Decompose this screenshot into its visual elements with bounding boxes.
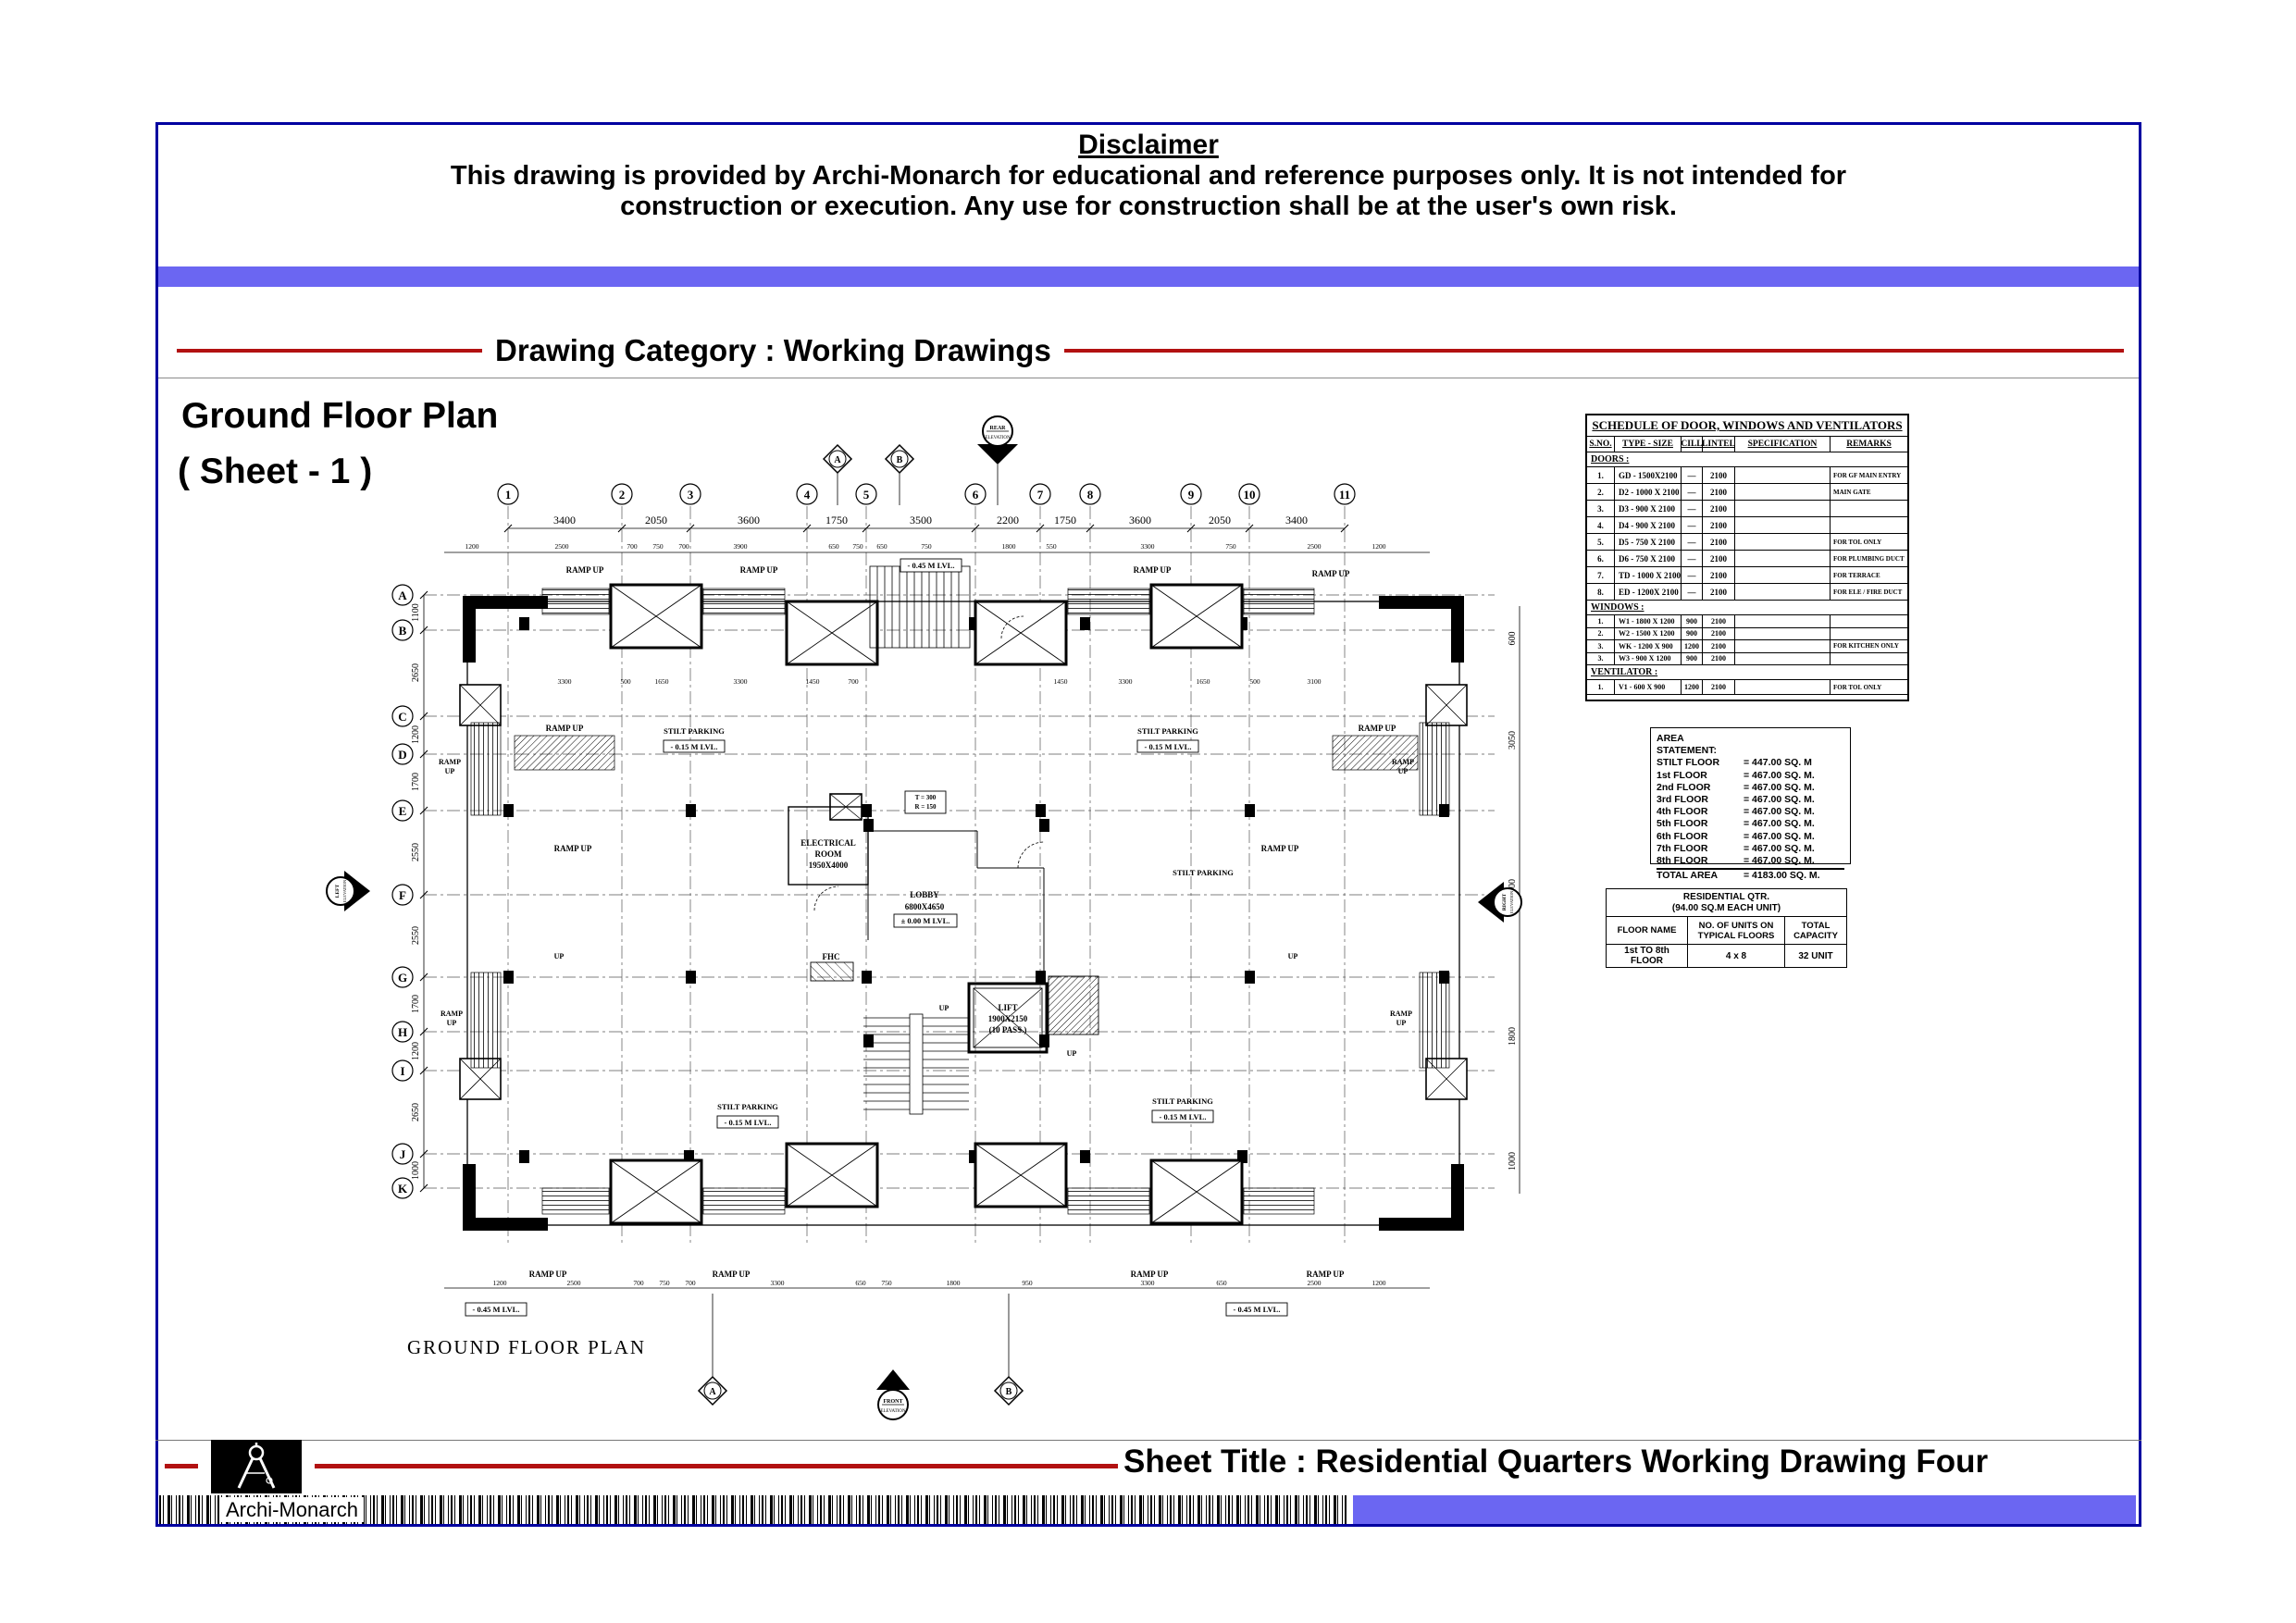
svg-text:ELECTRICAL: ELECTRICAL bbox=[800, 838, 856, 848]
residential-table: RESIDENTIAL QTR.(94.00 SQ.M EACH UNIT) F… bbox=[1606, 888, 1847, 968]
svg-text:2650: 2650 bbox=[411, 663, 421, 682]
svg-text:B: B bbox=[1006, 1387, 1012, 1397]
svg-text:A: A bbox=[398, 588, 407, 602]
svg-text:1800: 1800 bbox=[1508, 1027, 1518, 1046]
svg-text:2550: 2550 bbox=[411, 843, 421, 861]
svg-text:B: B bbox=[897, 455, 903, 465]
svg-text:2: 2 bbox=[619, 488, 626, 502]
svg-text:2500: 2500 bbox=[555, 542, 569, 551]
grid-bubbles-left: AB CD EF GH IJ K bbox=[392, 585, 413, 1198]
svg-text:650: 650 bbox=[876, 542, 887, 551]
svg-text:2200: 2200 bbox=[997, 514, 1019, 527]
svg-text:750: 750 bbox=[852, 542, 863, 551]
svg-text:3300: 3300 bbox=[771, 1279, 785, 1287]
disclaimer-block: Disclaimer This drawing is provided by A… bbox=[158, 130, 2139, 222]
svg-text:C: C bbox=[398, 710, 406, 724]
svg-text:LOBBY: LOBBY bbox=[910, 890, 939, 899]
svg-text:3400: 3400 bbox=[1285, 514, 1308, 527]
svg-text:9: 9 bbox=[1188, 488, 1195, 502]
svg-text:R = 150: R = 150 bbox=[914, 803, 937, 811]
table-row: 4.D4 - 900 X 2100—2100 bbox=[1587, 517, 1907, 534]
table-row: 2.D2 - 1000 X 2100—2100MAIN GATE bbox=[1587, 484, 1907, 501]
svg-text:RAMP UP: RAMP UP bbox=[1131, 1270, 1169, 1279]
svg-text:2650: 2650 bbox=[411, 1103, 421, 1121]
svg-text:550: 550 bbox=[1046, 542, 1057, 551]
svg-text:1000: 1000 bbox=[411, 1161, 421, 1180]
disclaimer-line2: construction or execution. Any use for c… bbox=[158, 192, 2139, 222]
svg-text:RAMP UP: RAMP UP bbox=[554, 844, 592, 853]
svg-text:UP: UP bbox=[445, 767, 455, 775]
svg-text:RAMP UP: RAMP UP bbox=[740, 565, 778, 575]
svg-text:3300: 3300 bbox=[1141, 1279, 1155, 1287]
svg-text:3: 3 bbox=[688, 488, 694, 502]
svg-text:2500: 2500 bbox=[567, 1279, 581, 1287]
svg-text:1900X2150: 1900X2150 bbox=[988, 1014, 1028, 1023]
svg-text:750: 750 bbox=[881, 1279, 892, 1287]
svg-text:ELEVATION: ELEVATION bbox=[880, 1409, 906, 1414]
corner-walls bbox=[463, 596, 1464, 1231]
svg-text:1700: 1700 bbox=[411, 995, 421, 1013]
svg-text:UP: UP bbox=[1067, 1049, 1077, 1058]
category-row: Drawing Category : Working Drawings bbox=[158, 329, 2139, 372]
svg-text:RAMP UP: RAMP UP bbox=[529, 1270, 567, 1279]
svg-text:3600: 3600 bbox=[738, 514, 760, 527]
table-row: 6.D6 - 750 X 2100—2100FOR PLUMBING DUCT bbox=[1587, 551, 1907, 567]
svg-text:FHC: FHC bbox=[823, 952, 840, 961]
svg-text:UP: UP bbox=[1288, 952, 1298, 960]
svg-text:LIFT: LIFT bbox=[998, 1003, 1017, 1012]
schedule-section-ventilator: VENTILATOR : bbox=[1587, 665, 1907, 680]
svg-text:10: 10 bbox=[1244, 488, 1256, 502]
table-row: 7.TD - 1000 X 2100—2100FOR TERRACE bbox=[1587, 567, 1907, 584]
svg-text:3500: 3500 bbox=[910, 514, 932, 527]
svg-text:1200: 1200 bbox=[465, 542, 479, 551]
svg-text:1750: 1750 bbox=[1054, 514, 1076, 527]
svg-text:ELEVATION: ELEVATION bbox=[985, 436, 1011, 440]
residential-title: RESIDENTIAL QTR.(94.00 SQ.M EACH UNIT) bbox=[1607, 889, 1846, 917]
area-title: AREA STATEMENT: bbox=[1657, 733, 1844, 757]
svg-text:1950X4000: 1950X4000 bbox=[809, 861, 849, 870]
svg-text:700: 700 bbox=[678, 542, 689, 551]
svg-text:1200: 1200 bbox=[1372, 1279, 1386, 1287]
svg-text:1200: 1200 bbox=[493, 1279, 507, 1287]
svg-text:UP: UP bbox=[1398, 767, 1409, 775]
svg-text:750: 750 bbox=[1225, 542, 1236, 551]
disclaimer-title: Disclaimer bbox=[158, 130, 2139, 161]
svg-text:1650: 1650 bbox=[1197, 677, 1210, 686]
list-item: STILT FLOOR= 447.00 SQ. M bbox=[1657, 757, 1844, 769]
list-item: 4th FLOOR= 467.00 SQ. M. bbox=[1657, 806, 1844, 818]
svg-text:3050: 3050 bbox=[1508, 731, 1518, 750]
category-label: Drawing Category : Working Drawings bbox=[482, 333, 1064, 368]
table-row: 1.W1 - 1800 X 12009002100 bbox=[1587, 615, 1907, 628]
svg-text:- 0.15 M LVL.: - 0.15 M LVL. bbox=[725, 1118, 772, 1127]
svg-text:I: I bbox=[400, 1064, 404, 1078]
svg-text:RAMP UP: RAMP UP bbox=[713, 1270, 751, 1279]
svg-text:F: F bbox=[399, 888, 406, 902]
area-total: TOTAL AREA= 4183.00 SQ. M. bbox=[1657, 868, 1844, 882]
svg-text:RAMP UP: RAMP UP bbox=[1307, 1270, 1345, 1279]
footer-redline-dash bbox=[165, 1464, 198, 1468]
svg-text:H: H bbox=[398, 1025, 407, 1039]
svg-text:2500: 2500 bbox=[1308, 1279, 1322, 1287]
svg-text:- 0.15 M LVL.: - 0.15 M LVL. bbox=[1160, 1112, 1207, 1121]
svg-text:700: 700 bbox=[627, 542, 638, 551]
svg-text:3300: 3300 bbox=[734, 677, 748, 686]
svg-text:FRONT: FRONT bbox=[884, 1399, 903, 1405]
category-redline-left bbox=[177, 349, 482, 353]
category-redline-right bbox=[1064, 349, 2124, 353]
svg-text:700: 700 bbox=[848, 677, 859, 686]
svg-text:UP: UP bbox=[1396, 1019, 1407, 1027]
svg-text:- 0.15 M LVL.: - 0.15 M LVL. bbox=[1145, 742, 1192, 751]
svg-text:650: 650 bbox=[1216, 1279, 1227, 1287]
floor-plan-drawing: 12 34 56 78 910 11 AB CD EF GH IJ K 3400… bbox=[305, 398, 1601, 1453]
plan-caption: GROUND FLOOR PLAN bbox=[407, 1336, 646, 1358]
bottom-accent-bar bbox=[1353, 1495, 2136, 1524]
svg-text:2550: 2550 bbox=[411, 926, 421, 945]
svg-text:1800: 1800 bbox=[1002, 542, 1016, 551]
ramp-bands bbox=[471, 588, 1449, 1214]
svg-text:ELEVATION: ELEVATION bbox=[342, 879, 347, 902]
svg-text:750: 750 bbox=[652, 542, 664, 551]
svg-text:3900: 3900 bbox=[734, 542, 748, 551]
svg-text:UP: UP bbox=[554, 952, 565, 960]
brand-name: Archi-Monarch bbox=[220, 1497, 364, 1522]
svg-text:750: 750 bbox=[921, 542, 932, 551]
table-row: 5.D5 - 750 X 2100—2100FOR TOI. ONLY bbox=[1587, 534, 1907, 551]
svg-text:STILT PARKING: STILT PARKING bbox=[717, 1102, 778, 1111]
svg-text:3300: 3300 bbox=[1119, 677, 1133, 686]
svg-text:1700: 1700 bbox=[411, 773, 421, 791]
columns bbox=[503, 617, 1449, 1163]
svg-text:RAMP: RAMP bbox=[1390, 1010, 1412, 1018]
table-row: 3.WK - 1200 X 90012002100FOR KITCHEN ONL… bbox=[1587, 640, 1907, 653]
residential-header-row: FLOOR NAME NO. OF UNITS ON TYPICAL FLOOR… bbox=[1607, 917, 1846, 945]
svg-text:RAMP UP: RAMP UP bbox=[1134, 565, 1172, 575]
svg-text:1200: 1200 bbox=[1372, 542, 1386, 551]
svg-text:T = 300: T = 300 bbox=[915, 794, 937, 801]
list-item: 5th FLOOR= 467.00 SQ. M. bbox=[1657, 818, 1844, 830]
svg-text:RAMP UP: RAMP UP bbox=[1312, 569, 1350, 578]
svg-text:RIGHT: RIGHT bbox=[1502, 894, 1508, 911]
svg-text:STILT PARKING: STILT PARKING bbox=[664, 726, 725, 736]
table-row: 1st TO 8th FLOOR 4 x 8 32 UNIT bbox=[1607, 945, 1846, 967]
svg-text:650: 650 bbox=[855, 1279, 866, 1287]
svg-text:J: J bbox=[400, 1147, 406, 1161]
svg-text:REAR: REAR bbox=[989, 426, 1006, 431]
svg-text:1650: 1650 bbox=[655, 677, 669, 686]
svg-text:2050: 2050 bbox=[1209, 514, 1231, 527]
svg-text:± 0.00 M LVL.: ± 0.00 M LVL. bbox=[901, 916, 950, 925]
svg-text:UP: UP bbox=[939, 1004, 949, 1012]
list-item: 3rd FLOOR= 467.00 SQ. M. bbox=[1657, 794, 1844, 806]
svg-text:3100: 3100 bbox=[1308, 677, 1322, 686]
svg-text:1200: 1200 bbox=[411, 1042, 421, 1060]
footer-redline bbox=[315, 1464, 1118, 1468]
svg-text:- 0.45 M LVL.: - 0.45 M LVL. bbox=[1234, 1305, 1281, 1314]
svg-text:700: 700 bbox=[685, 1279, 696, 1287]
svg-text:7: 7 bbox=[1037, 488, 1044, 502]
bottom-dimensions: 12002500 700750 7003300 650750 1800950 3… bbox=[493, 1279, 1386, 1287]
svg-text:STILT PARKING: STILT PARKING bbox=[1137, 726, 1198, 736]
building-perimeter bbox=[467, 601, 1459, 1225]
schedule-title: SCHEDULE OF DOOR, WINDOWS AND VENTILATOR… bbox=[1587, 415, 1907, 437]
brand-logo bbox=[211, 1440, 302, 1493]
svg-text:3400: 3400 bbox=[553, 514, 576, 527]
svg-text:RAMP UP: RAMP UP bbox=[1359, 724, 1396, 733]
svg-text:1800: 1800 bbox=[947, 1279, 961, 1287]
disclaimer-line1: This drawing is provided by Archi-Monarc… bbox=[158, 161, 2139, 192]
svg-text:3300: 3300 bbox=[1141, 542, 1155, 551]
svg-text:1000: 1000 bbox=[1508, 1152, 1518, 1171]
list-item: 7th FLOOR= 467.00 SQ. M. bbox=[1657, 843, 1844, 855]
svg-text:500: 500 bbox=[1249, 677, 1260, 686]
svg-text:8: 8 bbox=[1087, 488, 1094, 502]
svg-text:3300: 3300 bbox=[558, 677, 572, 686]
svg-text:RAMP: RAMP bbox=[1392, 758, 1414, 766]
svg-text:1200: 1200 bbox=[411, 725, 421, 744]
svg-text:A: A bbox=[709, 1387, 716, 1397]
svg-text:2500: 2500 bbox=[1308, 542, 1322, 551]
schedule-section-doors: DOORS : bbox=[1587, 452, 1907, 467]
table-row: 1.V1 - 600 X 90012002100FOR TOI. ONLY bbox=[1587, 680, 1907, 695]
left-elevation-marker: LEFT ELEVATION bbox=[327, 871, 370, 911]
svg-text:6: 6 bbox=[973, 488, 979, 502]
svg-text:- 0.45 M LVL.: - 0.45 M LVL. bbox=[908, 561, 955, 570]
svg-text:650: 650 bbox=[828, 542, 839, 551]
svg-text:LEFT: LEFT bbox=[335, 884, 341, 898]
svg-text:ELEVATION: ELEVATION bbox=[1509, 890, 1514, 913]
schedule-section-windows: WINDOWS : bbox=[1587, 601, 1907, 615]
svg-text:- 0.45 M LVL.: - 0.45 M LVL. bbox=[473, 1305, 520, 1314]
svg-text:2050: 2050 bbox=[645, 514, 667, 527]
svg-text:ROOM: ROOM bbox=[815, 849, 843, 859]
svg-text:- 0.15 M LVL.: - 0.15 M LVL. bbox=[671, 742, 718, 751]
svg-text:STILT PARKING: STILT PARKING bbox=[1173, 868, 1234, 877]
svg-text:G: G bbox=[398, 971, 407, 985]
svg-text:D: D bbox=[398, 748, 406, 762]
svg-text:11: 11 bbox=[1339, 488, 1350, 502]
svg-text:1100: 1100 bbox=[411, 603, 421, 622]
svg-text:700: 700 bbox=[633, 1279, 644, 1287]
svg-text:6800X4650: 6800X4650 bbox=[905, 902, 945, 911]
svg-text:750: 750 bbox=[659, 1279, 670, 1287]
compass-icon bbox=[211, 1440, 302, 1493]
svg-text:UP: UP bbox=[447, 1019, 457, 1027]
schedule-table: SCHEDULE OF DOOR, WINDOWS AND VENTILATOR… bbox=[1585, 414, 1909, 701]
svg-text:(10 PASS.): (10 PASS.) bbox=[989, 1025, 1027, 1035]
svg-text:3600: 3600 bbox=[1129, 514, 1151, 527]
table-row: 1.GD - 1500X2100—2100FOR GF MAIN ENTRY bbox=[1587, 467, 1907, 484]
svg-text:K: K bbox=[398, 1182, 408, 1196]
svg-text:1450: 1450 bbox=[806, 677, 820, 686]
svg-text:1: 1 bbox=[505, 488, 512, 502]
list-item: 1st FLOOR= 467.00 SQ. M. bbox=[1657, 770, 1844, 782]
category-divider bbox=[158, 378, 2139, 378]
list-item: 6th FLOOR= 467.00 SQ. M. bbox=[1657, 831, 1844, 843]
footer-divider bbox=[155, 1440, 2141, 1441]
svg-text:600: 600 bbox=[1508, 632, 1518, 646]
table-row: 3.D3 - 900 X 2100—2100 bbox=[1587, 501, 1907, 517]
svg-text:1750: 1750 bbox=[825, 514, 848, 527]
table-row: 2.W2 - 1500 X 12009002100 bbox=[1587, 628, 1907, 641]
schedule-header-row: S.NO. TYPE - SIZE CILL LINTEL SPECIFICAT… bbox=[1587, 437, 1907, 452]
svg-text:A: A bbox=[834, 455, 841, 465]
inner-dimensions: 3300500 16503300 1450700 14503300 165050… bbox=[558, 677, 1322, 686]
svg-text:4: 4 bbox=[804, 488, 811, 502]
svg-text:B: B bbox=[399, 624, 407, 638]
grid-lines bbox=[424, 506, 1495, 1245]
svg-text:1450: 1450 bbox=[1054, 677, 1068, 686]
svg-text:950: 950 bbox=[1022, 1279, 1033, 1287]
svg-text:E: E bbox=[399, 804, 407, 818]
svg-text:STILT PARKING: STILT PARKING bbox=[1152, 1096, 1213, 1106]
svg-text:RAMP: RAMP bbox=[439, 758, 461, 766]
grid-bubbles-top: 12 34 56 78 910 11 bbox=[498, 484, 1355, 504]
sub-dimensions: 12002500 700750 7003900 650750 650750 18… bbox=[465, 542, 1386, 551]
svg-text:500: 500 bbox=[620, 677, 631, 686]
sheet-title: Sheet Title : Residential Quarters Worki… bbox=[1123, 1443, 1988, 1481]
area-statement: AREA STATEMENT: STILT FLOOR= 447.00 SQ. … bbox=[1650, 727, 1851, 864]
svg-text:RAMP UP: RAMP UP bbox=[1261, 844, 1299, 853]
front-elevation-marker: FRONT ELEVATION bbox=[876, 1369, 910, 1419]
table-row: 3.W3 - 900 X 12009002100 bbox=[1587, 653, 1907, 666]
svg-text:5: 5 bbox=[863, 488, 870, 502]
list-item: 2nd FLOOR= 467.00 SQ. M. bbox=[1657, 782, 1844, 794]
top-accent-bar bbox=[158, 266, 2139, 287]
svg-text:RAMP UP: RAMP UP bbox=[546, 724, 584, 733]
svg-text:RAMP: RAMP bbox=[441, 1010, 463, 1018]
drawing-sheet: Disclaimer This drawing is provided by A… bbox=[0, 0, 2296, 1623]
table-row: 8.ED - 1200X 2100—2100FOR ELE / FIRE DUC… bbox=[1587, 584, 1907, 601]
svg-text:RAMP UP: RAMP UP bbox=[566, 565, 604, 575]
list-item: 8th FLOOR= 467.00 SQ. M. bbox=[1657, 855, 1844, 867]
